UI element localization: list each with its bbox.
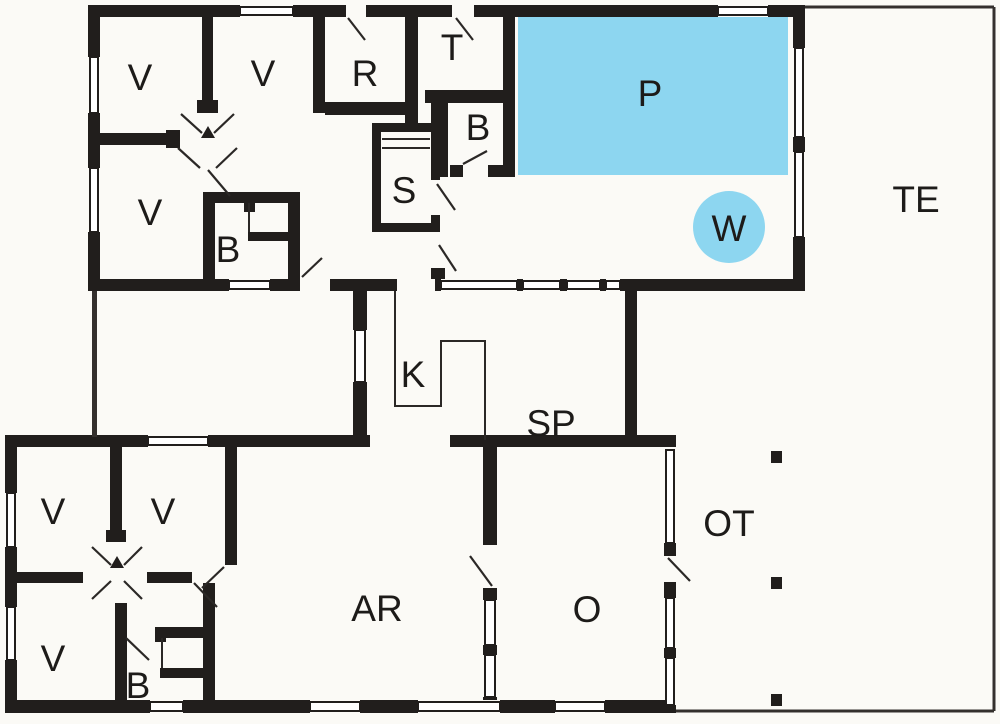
floor-plan-page: V V R T B S V B P W TE K SP OT O AR V V … xyxy=(0,0,1000,724)
floor-plan: V V R T B S V B P W TE K SP OT O AR V V … xyxy=(0,0,1000,724)
room-label-covered-terrace: OT xyxy=(703,503,754,544)
room-label-s: S xyxy=(392,170,417,211)
room-label-o: O xyxy=(573,589,602,630)
room-label-v-top-3: V xyxy=(138,192,163,233)
room-label-t: T xyxy=(441,27,464,68)
room-label-b-top-left: B xyxy=(216,229,241,270)
room-label-v-bottom-1: V xyxy=(41,491,66,532)
room-label-pool: P xyxy=(638,73,663,114)
room-label-v-top-1: V xyxy=(128,57,153,98)
room-label-r: R xyxy=(352,53,379,94)
room-label-terrace: TE xyxy=(892,179,939,220)
room-label-whirlpool: W xyxy=(712,208,747,249)
courtyard-fence xyxy=(92,291,97,437)
room-label-v-top-2: V xyxy=(251,53,276,94)
room-label-dining: SP xyxy=(526,403,575,444)
room-label-v-bottom-3: V xyxy=(41,638,66,679)
room-label-kitchen: K xyxy=(401,354,426,395)
plan-background xyxy=(0,0,1000,724)
room-label-ar: AR xyxy=(351,588,402,629)
room-label-b-top-right: B xyxy=(466,107,491,148)
room-label-b-bottom: B xyxy=(126,665,151,706)
room-label-v-bottom-2: V xyxy=(151,491,176,532)
